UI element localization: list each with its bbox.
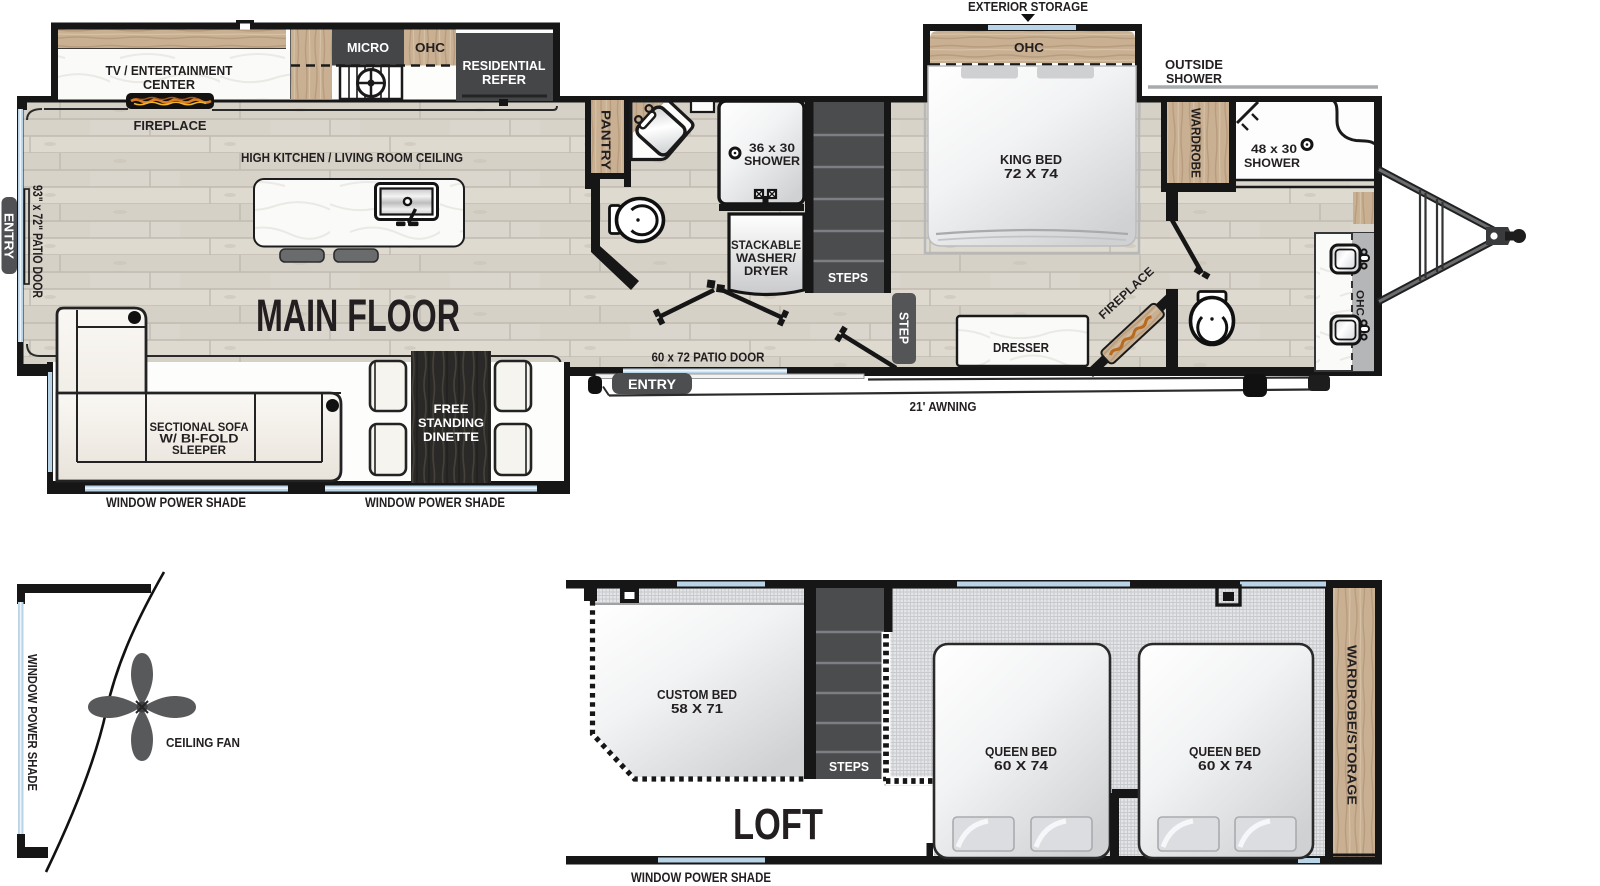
svg-text:60 X 74: 60 X 74 (994, 759, 1048, 773)
svg-text:PANTRY: PANTRY (599, 110, 613, 171)
svg-text:DINETTE: DINETTE (423, 430, 479, 444)
svg-text:58 X 71: 58 X 71 (671, 702, 723, 716)
svg-text:STANDING: STANDING (418, 416, 484, 430)
svg-text:WINDOW POWER SHADE: WINDOW POWER SHADE (25, 654, 40, 791)
svg-text:ENTRY: ENTRY (628, 377, 676, 392)
svg-text:DRYER: DRYER (744, 264, 788, 278)
svg-text:STEP: STEP (897, 312, 911, 344)
svg-text:SLEEPER: SLEEPER (172, 445, 227, 457)
svg-text:TV / ENTERTAINMENT: TV / ENTERTAINMENT (106, 64, 233, 78)
svg-text:OHC: OHC (415, 41, 445, 55)
svg-text:SHOWER: SHOWER (1244, 156, 1300, 170)
svg-text:W/ BI-FOLD: W/ BI-FOLD (160, 434, 239, 446)
svg-text:WARDROBE: WARDROBE (1189, 108, 1203, 178)
svg-text:WINDOW POWER SHADE: WINDOW POWER SHADE (365, 495, 505, 510)
svg-text:CENTER: CENTER (143, 78, 195, 92)
svg-text:48 x 30: 48 x 30 (1251, 142, 1297, 156)
svg-text:36 x 30: 36 x 30 (749, 141, 795, 155)
svg-text:WINDOW POWER SHADE: WINDOW POWER SHADE (106, 495, 246, 510)
svg-text:OHC: OHC (1014, 41, 1044, 55)
svg-text:MAIN FLOOR: MAIN FLOOR (256, 290, 460, 341)
svg-text:SHOWER: SHOWER (744, 154, 800, 168)
svg-text:93" x 72" PATIO DOOR: 93" x 72" PATIO DOOR (30, 185, 45, 298)
svg-text:CUSTOM BED: CUSTOM BED (657, 688, 737, 702)
svg-text:STEPS: STEPS (828, 270, 868, 285)
svg-text:WASHER/: WASHER/ (736, 251, 797, 265)
svg-text:QUEEN BED: QUEEN BED (1189, 745, 1261, 759)
svg-text:STEPS: STEPS (829, 759, 869, 774)
svg-text:72 X 74: 72 X 74 (1004, 167, 1058, 181)
svg-text:MICRO: MICRO (347, 41, 389, 55)
svg-text:DRESSER: DRESSER (993, 341, 1049, 355)
svg-text:WINDOW POWER SHADE: WINDOW POWER SHADE (631, 870, 771, 885)
svg-text:21' AWNING: 21' AWNING (910, 399, 977, 414)
svg-text:FREE: FREE (434, 402, 469, 416)
svg-text:STACKABLE: STACKABLE (731, 238, 801, 252)
svg-text:LOFT: LOFT (733, 800, 823, 849)
svg-text:EXTERIOR STORAGE: EXTERIOR STORAGE (968, 0, 1088, 14)
svg-text:RESIDENTIAL: RESIDENTIAL (463, 59, 546, 73)
svg-text:OUTSIDE: OUTSIDE (1165, 58, 1223, 72)
svg-text:CEILING FAN: CEILING FAN (166, 735, 240, 750)
svg-text:ENTRY: ENTRY (2, 213, 17, 259)
svg-text:REFER: REFER (482, 73, 526, 87)
svg-text:60 x 72 PATIO DOOR: 60 x 72 PATIO DOOR (652, 350, 766, 365)
svg-text:60 X 74: 60 X 74 (1198, 759, 1252, 773)
svg-text:OHC: OHC (1354, 290, 1366, 316)
svg-text:FIREPLACE: FIREPLACE (134, 118, 207, 133)
svg-text:WARDROBE/STORAGE: WARDROBE/STORAGE (1345, 645, 1359, 805)
svg-text:SHOWER: SHOWER (1166, 72, 1222, 86)
svg-text:HIGH KITCHEN / LIVING ROOM CEI: HIGH KITCHEN / LIVING ROOM CEILING (241, 150, 463, 165)
svg-text:SECTIONAL SOFA: SECTIONAL SOFA (150, 422, 249, 434)
svg-text:QUEEN BED: QUEEN BED (985, 745, 1057, 759)
svg-text:KING BED: KING BED (1000, 153, 1062, 167)
